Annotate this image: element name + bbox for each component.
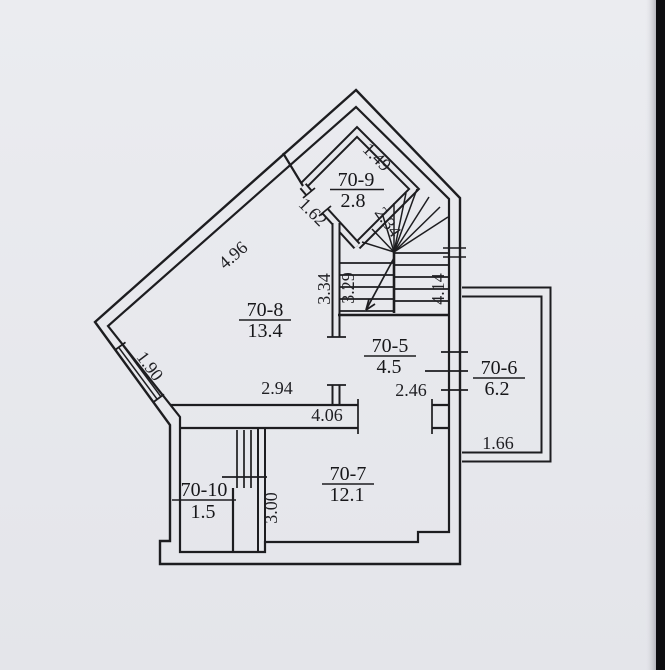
room-707-area: 12.1 — [330, 484, 365, 506]
dim-300: 3.00 — [261, 492, 281, 524]
floor-plan-drawing: 70-9 2.8 70-8 13.4 70-5 4.5 70-6 6.2 70-… — [0, 0, 665, 670]
room-709-area: 2.8 — [341, 190, 366, 212]
room-709-id: 70-9 — [338, 169, 375, 191]
dim-246: 2.46 — [395, 380, 427, 400]
dim-329: 3.29 — [338, 272, 358, 304]
page-edge-shadow — [645, 0, 657, 670]
room-708-area: 13.4 — [248, 320, 283, 342]
room-706-id: 70-6 — [481, 357, 518, 379]
room-7010-id: 70-10 — [181, 479, 228, 501]
page-edge — [656, 0, 665, 670]
dim-406: 4.06 — [311, 405, 343, 425]
dim-166: 1.66 — [482, 433, 514, 453]
dim-414: 4.14 — [428, 273, 448, 305]
floor-plan-photo: 70-9 2.8 70-8 13.4 70-5 4.5 70-6 6.2 70-… — [0, 0, 665, 670]
dim-334: 3.34 — [314, 273, 334, 305]
room-705-area: 4.5 — [377, 356, 402, 378]
room-706-area: 6.2 — [485, 378, 510, 400]
room-7010-area: 1.5 — [191, 501, 216, 523]
dim-294: 2.94 — [261, 378, 293, 398]
room-708-id: 70-8 — [247, 299, 284, 321]
room-705-id: 70-5 — [372, 335, 409, 357]
room-707-id: 70-7 — [330, 463, 367, 485]
